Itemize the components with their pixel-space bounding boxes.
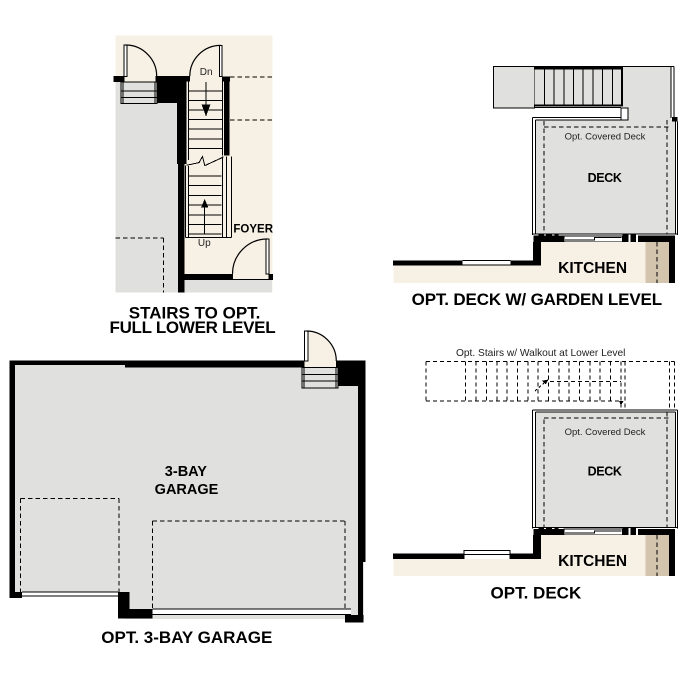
svg-text:3-BAY: 3-BAY [165, 464, 208, 480]
svg-text:FULL LOWER LEVEL: FULL LOWER LEVEL [109, 318, 275, 337]
svg-text:DECK: DECK [588, 171, 622, 185]
svg-text:FOYER: FOYER [233, 224, 273, 236]
svg-text:Opt. Covered Deck: Opt. Covered Deck [565, 132, 646, 143]
svg-text:GARAGE: GARAGE [155, 482, 219, 498]
svg-text:OPT. DECK W/ GARDEN LEVEL: OPT. DECK W/ GARDEN LEVEL [412, 290, 662, 309]
svg-text:DECK: DECK [588, 464, 622, 478]
svg-text:KITCHEN: KITCHEN [558, 260, 627, 277]
svg-text:OPT. 3-BAY GARAGE: OPT. 3-BAY GARAGE [101, 628, 272, 647]
svg-text:Up: Up [198, 238, 211, 249]
svg-text:OPT. DECK: OPT. DECK [491, 583, 582, 602]
svg-text:Opt. Covered Deck: Opt. Covered Deck [565, 427, 646, 438]
svg-text:KITCHEN: KITCHEN [558, 553, 627, 570]
svg-text:Dn: Dn [200, 67, 213, 78]
svg-text:Opt. Stairs w/ Walkout at Lowe: Opt. Stairs w/ Walkout at Lower Level [456, 348, 625, 359]
